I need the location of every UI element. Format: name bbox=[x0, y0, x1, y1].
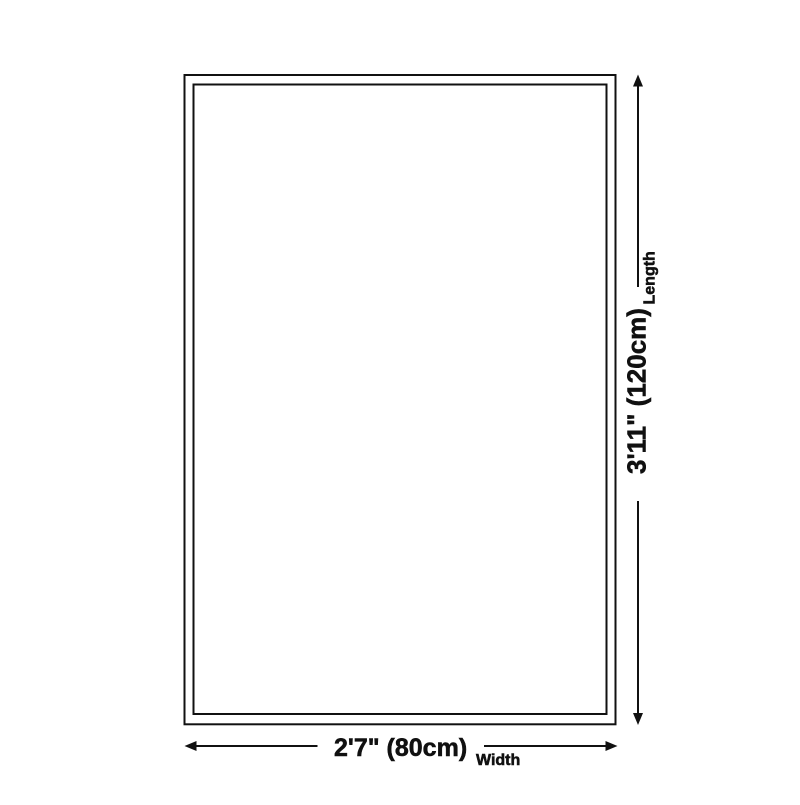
svg-text:Width: Width bbox=[476, 752, 520, 769]
svg-text:3'11" (120cm): 3'11" (120cm) bbox=[622, 308, 652, 474]
svg-text:2'7" (80cm): 2'7" (80cm) bbox=[334, 734, 467, 762]
svg-text:Length: Length bbox=[642, 251, 659, 304]
